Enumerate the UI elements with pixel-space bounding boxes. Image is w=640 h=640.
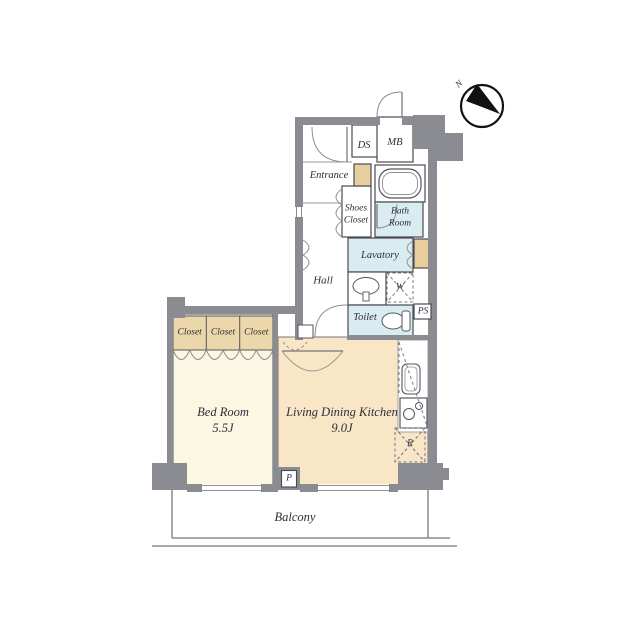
label-shoes-closet-line2: Closet [344,216,368,226]
label-closet-2: Closet [211,328,235,338]
label-lavatory: Lavatory [361,251,399,262]
label-pillar-p: P [286,474,292,484]
floor-plan: N DS MB Entrance Shoes Closet Bath Room … [0,0,640,640]
label-bath-line2: Room [389,219,411,229]
label-mb: MB [387,138,402,149]
label-ldk-size: 9.0J [331,422,352,435]
label-refrigerator: R [407,439,413,449]
window-bedroom-south [202,484,261,492]
label-washer: W [396,283,404,293]
window-ldk-south [318,484,389,492]
label-shoes-closet-line1: Shoes [345,204,367,214]
vanity-sink-unit [348,272,386,305]
label-toilet: Toilet [353,313,377,324]
label-ldk-name: Living Dining Kitchen [286,406,398,419]
compass-icon [461,84,503,127]
label-ds: DS [358,141,371,152]
bath-tub-compartment [375,165,425,202]
label-ps: PS [418,307,429,317]
window-west [295,207,304,217]
label-balcony: Balcony [275,511,316,524]
label-closet-3: Closet [244,328,268,338]
label-closet-1: Closet [178,328,202,338]
hall-wall-stub [298,325,313,338]
label-bedroom-size: 5.5J [212,422,233,435]
label-bedroom-name: Bed Room [197,406,249,419]
label-entrance: Entrance [310,171,349,182]
label-hall: Hall [313,276,333,287]
lavatory-side-cabinet [414,239,430,268]
floor-plan-drawing [0,0,640,640]
entrance-shoe-cabinet [354,164,371,186]
label-bath-line1: Bath [391,207,409,217]
